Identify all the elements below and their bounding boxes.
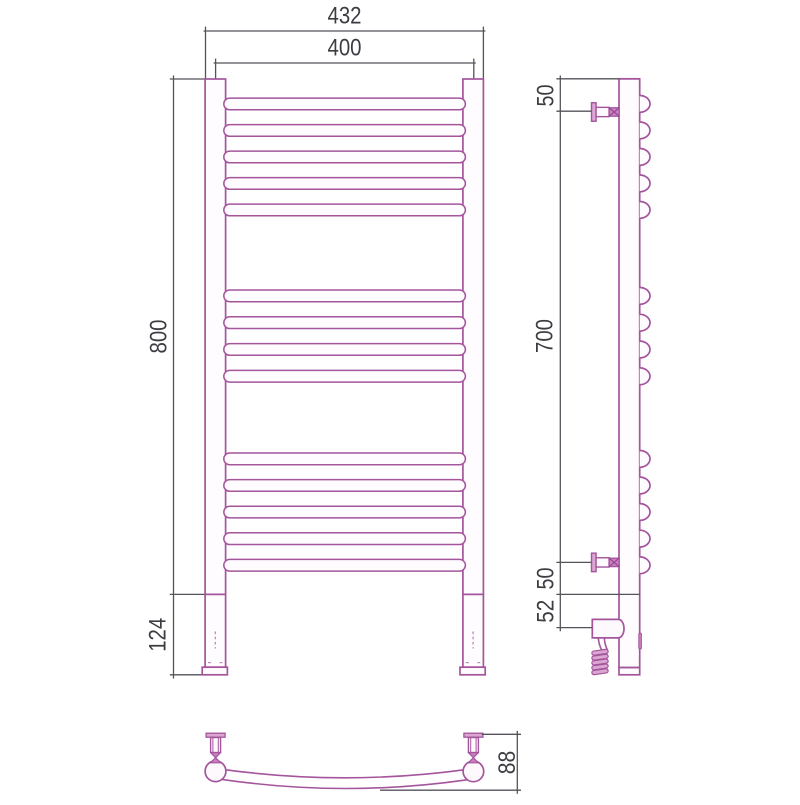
svg-text:432: 432 (328, 3, 362, 30)
svg-text:800: 800 (146, 320, 173, 354)
svg-text:124: 124 (145, 618, 172, 652)
svg-text:52: 52 (533, 600, 560, 623)
svg-text:700: 700 (532, 319, 559, 353)
svg-text:50: 50 (533, 568, 560, 590)
svg-text:400: 400 (328, 35, 362, 62)
svg-text:50: 50 (533, 85, 560, 107)
